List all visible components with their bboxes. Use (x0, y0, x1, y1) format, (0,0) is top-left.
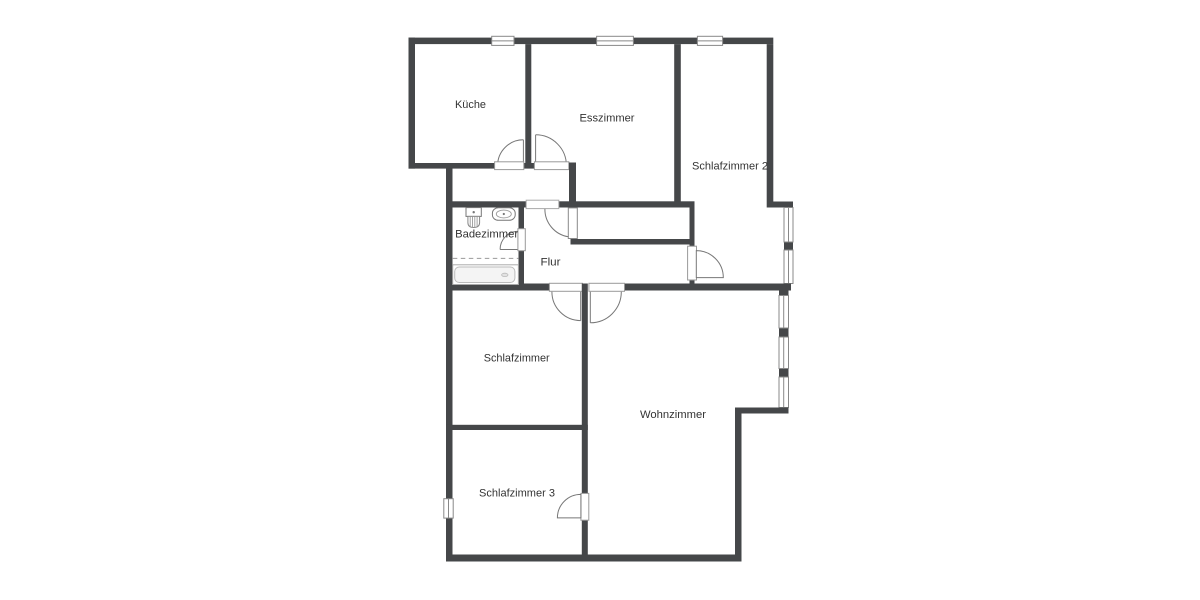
svg-text:Schlafzimmer: Schlafzimmer (484, 352, 550, 364)
svg-text:Esszimmer: Esszimmer (580, 113, 635, 125)
svg-text:Schlafzimmer 2: Schlafzimmer 2 (692, 161, 768, 173)
svg-text:Wohnzimmer: Wohnzimmer (640, 409, 706, 421)
svg-text:Küche: Küche (455, 99, 486, 111)
svg-text:Badezimmer: Badezimmer (455, 228, 518, 240)
svg-text:Schlafzimmer 3: Schlafzimmer 3 (479, 488, 555, 500)
svg-text:Flur: Flur (541, 257, 561, 269)
